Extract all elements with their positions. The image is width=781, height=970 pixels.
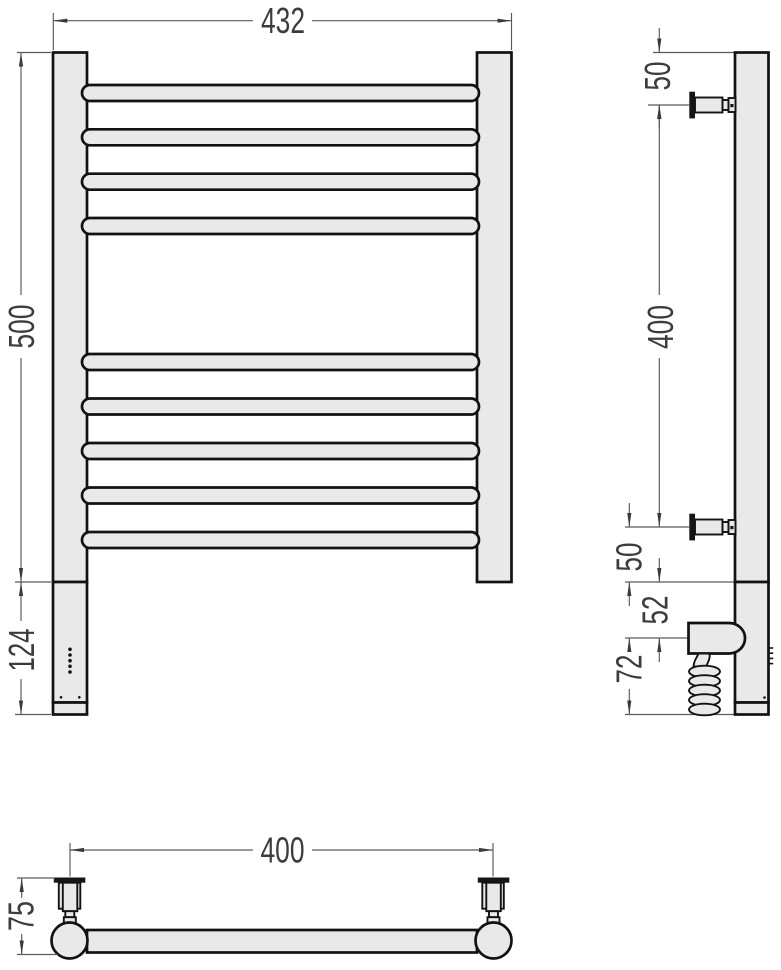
bracket-body (695, 520, 723, 535)
cable-neck (694, 654, 710, 667)
led-dot (68, 659, 72, 663)
dim-wall-to-front-depth: 75 (1, 901, 42, 931)
bracket-body (695, 98, 723, 113)
rung (82, 174, 479, 190)
dim-overall-width: 432 (261, 0, 305, 41)
dim-plan-bracket-spacing: 400 (261, 830, 305, 871)
wall-bracket-top (689, 92, 735, 119)
front-right-post (477, 53, 512, 583)
side-post (735, 53, 769, 583)
rung (82, 443, 479, 459)
rung (82, 532, 479, 548)
rung (82, 218, 479, 234)
front-view (53, 53, 512, 715)
dim-heater-section-height: 124 (1, 629, 42, 672)
dim-rail-height: 500 (1, 305, 42, 349)
plan-post-right (476, 923, 512, 959)
side-view (689, 53, 774, 716)
led-dot (68, 665, 72, 669)
drawing-svg: 432 500 124 50 400 50 52 72 (0, 0, 781, 970)
rung (82, 354, 479, 370)
cap-screw-dot (763, 696, 766, 699)
dim-bracket-to-base: 50 (609, 543, 650, 572)
rung (82, 488, 479, 504)
bracket-body-inner (63, 883, 78, 912)
wall-bracket-bottom (689, 514, 735, 541)
led-dot (68, 653, 72, 657)
led-dot (68, 648, 72, 652)
cap-screw-dot (60, 696, 63, 699)
rung (82, 85, 479, 101)
rung (82, 129, 479, 145)
bracket-body-inner (486, 883, 501, 912)
dim-top-to-bracket: 50 (637, 62, 678, 91)
plan-post-left (52, 923, 88, 959)
plan-bottom-rung (87, 930, 477, 953)
front-heater-section (53, 582, 87, 703)
plan-bracket-left (54, 878, 86, 924)
heater-control-housing (689, 623, 746, 654)
plan-view (52, 878, 512, 959)
dim-heater-axis-to-bottom: 72 (609, 655, 650, 684)
side-heater-cap (735, 703, 769, 715)
towel-rail-technical-drawing: 432 500 124 50 400 50 52 72 (0, 0, 781, 970)
front-left-post (53, 53, 87, 583)
coil-loop (689, 704, 720, 716)
dim-base-to-heater-axis: 52 (635, 596, 676, 625)
bracket-nut-dot (730, 526, 733, 529)
led-dot (68, 670, 72, 674)
coiled-power-cable (689, 666, 720, 716)
bracket-nut-dot (730, 104, 733, 107)
plan-bracket-right (478, 878, 510, 924)
front-heater-cap (53, 703, 87, 715)
cap-screw-dot (78, 696, 81, 699)
rung (82, 399, 479, 415)
dim-bracket-spacing: 400 (640, 305, 681, 349)
